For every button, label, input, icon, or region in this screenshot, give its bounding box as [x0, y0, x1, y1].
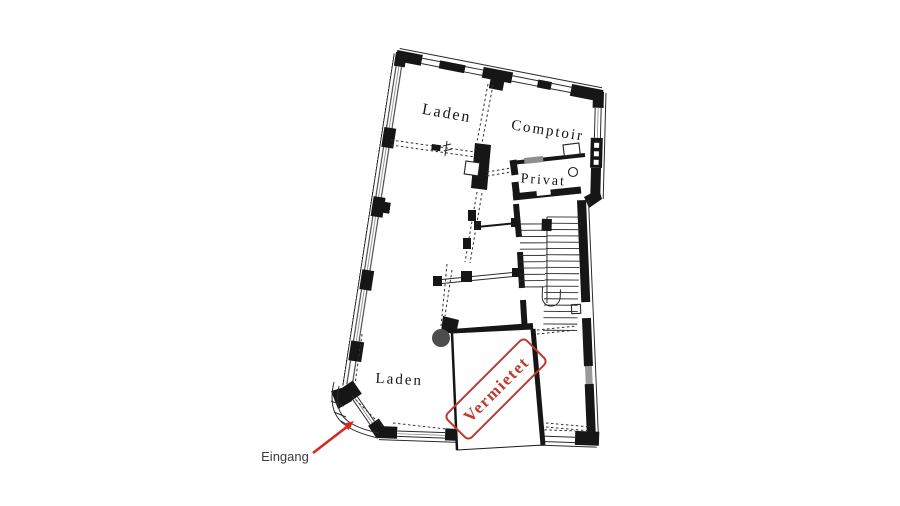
stair-door-gap [580, 302, 592, 318]
room-label-comptoir: Comptoir [510, 117, 585, 144]
stove-circle [569, 168, 578, 177]
counter [524, 156, 544, 164]
desk [563, 143, 580, 156]
partition-laden-horizontal [391, 140, 475, 157]
wall-comptoir-privat [511, 155, 585, 163]
entrance-label: Eingang [261, 449, 309, 464]
outer-wall-left [343, 52, 414, 389]
wall-mid-upper [474, 218, 518, 230]
room-label-privat: Privat [520, 171, 566, 189]
entrance-arrow-icon [313, 421, 354, 453]
stair-newel [541, 219, 551, 231]
room-label-laden-top: Laden [421, 101, 473, 126]
floor-plan: Vermietet Laden Comptoir Privat Laden Ei… [0, 0, 900, 506]
room-label-laden-bottom: Laden [375, 371, 423, 389]
partition-spine [441, 192, 482, 334]
door-marker [585, 366, 593, 384]
partition-laden-comptoir [477, 84, 493, 143]
page-background: Vermietet Laden Comptoir Privat Laden Ei… [0, 0, 900, 506]
fixture-square [464, 161, 480, 176]
column-dot [432, 329, 450, 347]
partition-pier-privat [487, 168, 511, 176]
outer-wall-right-upper [589, 92, 606, 200]
bay-dashes [537, 326, 591, 431]
entrance-annotation: Eingang [261, 421, 354, 464]
